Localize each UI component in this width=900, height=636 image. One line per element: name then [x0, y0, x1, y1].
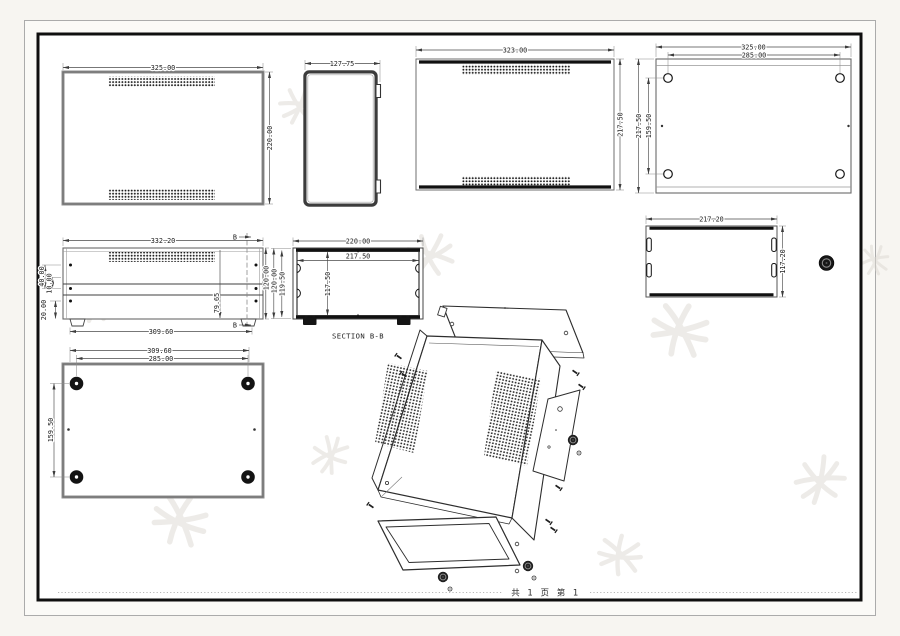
mount-hole: [664, 170, 673, 179]
mount-hole: [664, 74, 673, 83]
top-vent-bottom: [462, 176, 570, 187]
dim-section-inner-height: 117.50: [324, 272, 332, 297]
dim-front-width: 325.00: [151, 64, 176, 72]
bottom-view-outline: [656, 59, 851, 193]
dim-bottom-holespan-w: 285.00: [742, 52, 767, 60]
top-vent-top: [462, 65, 570, 76]
mount-hole: [836, 74, 845, 83]
dim-bottom-height: 217.50: [635, 114, 643, 139]
section-marker-label: B: [233, 322, 237, 330]
dim-section-outer-height: 120.00: [270, 269, 278, 294]
dim-rear-foot-height: 20.00: [40, 300, 48, 320]
base-view: 309.60 285.00 159.50: [47, 347, 263, 497]
side-tab-top: [377, 85, 381, 98]
base-view-outline: [63, 364, 263, 497]
exploded-foot: [523, 561, 533, 571]
front-view: 325.00 220.00: [63, 63, 274, 204]
front-vent-top: [108, 77, 215, 88]
rubber-foot-detail: [819, 256, 834, 271]
section-view-label: SECTION B-B: [332, 332, 384, 341]
drawing-sheet: 325.00 220.00 127.75 323.00: [0, 0, 900, 636]
dim-cover-width: 217.20: [699, 216, 724, 224]
rear-vent: [108, 252, 215, 262]
top-view: 323.00 217.50: [416, 46, 625, 190]
bottom-view: 325.00 285.00 217.50 159.50: [635, 44, 851, 194]
dim-top-width: 323.00: [503, 47, 528, 55]
dim-rear-vent-offset: 79.65: [213, 293, 221, 313]
side-view-outline: [305, 72, 376, 205]
dim-front-height: 220.00: [266, 126, 274, 151]
dim-cover-height: 117.20: [779, 249, 787, 274]
front-vent-bottom: [108, 190, 215, 201]
drawing-canvas: 325.00 220.00 127.75 323.00: [0, 0, 900, 636]
side-tab-bottom: [377, 180, 381, 193]
side-view: 127.75: [304, 60, 381, 206]
exploded-foot: [568, 435, 578, 445]
dim-rear-width: 332.20: [151, 237, 176, 245]
top-view-outline: [416, 59, 614, 190]
dim-rear-base-width: 309.60: [149, 328, 174, 336]
cover-view: 217.20 117.20: [646, 216, 787, 298]
exploded-foot: [438, 572, 448, 582]
dim-rear-height: 120.00: [262, 266, 270, 291]
mount-hole: [836, 170, 845, 179]
rear-foot-left: [70, 319, 85, 326]
dim-bottom-holespan-h: 159.50: [645, 114, 653, 139]
front-view-outline: [63, 72, 263, 204]
dim-section-outer-width: 220.00: [346, 238, 371, 246]
cover-view-outline: [646, 226, 777, 297]
dim-bottom-width: 325.00: [741, 44, 766, 52]
base-foot: [241, 470, 255, 484]
dim-section-inner-width: 217.50: [346, 253, 371, 261]
base-foot: [241, 377, 255, 391]
dim-rear-offset: 10.00: [46, 273, 54, 293]
base-foot: [70, 470, 84, 484]
dim-base-holespan-h: 159.50: [47, 418, 55, 443]
dim-section-wall-height: 119.50: [278, 272, 286, 297]
page-count-label: 共 1 页 第 1: [511, 588, 581, 599]
dim-side-width: 127.75: [330, 60, 355, 68]
dim-top-height: 217.50: [617, 112, 625, 137]
dim-base-width: 309.60: [147, 347, 172, 355]
dim-base-holespan-w: 285.00: [149, 355, 174, 363]
base-foot: [70, 377, 84, 391]
